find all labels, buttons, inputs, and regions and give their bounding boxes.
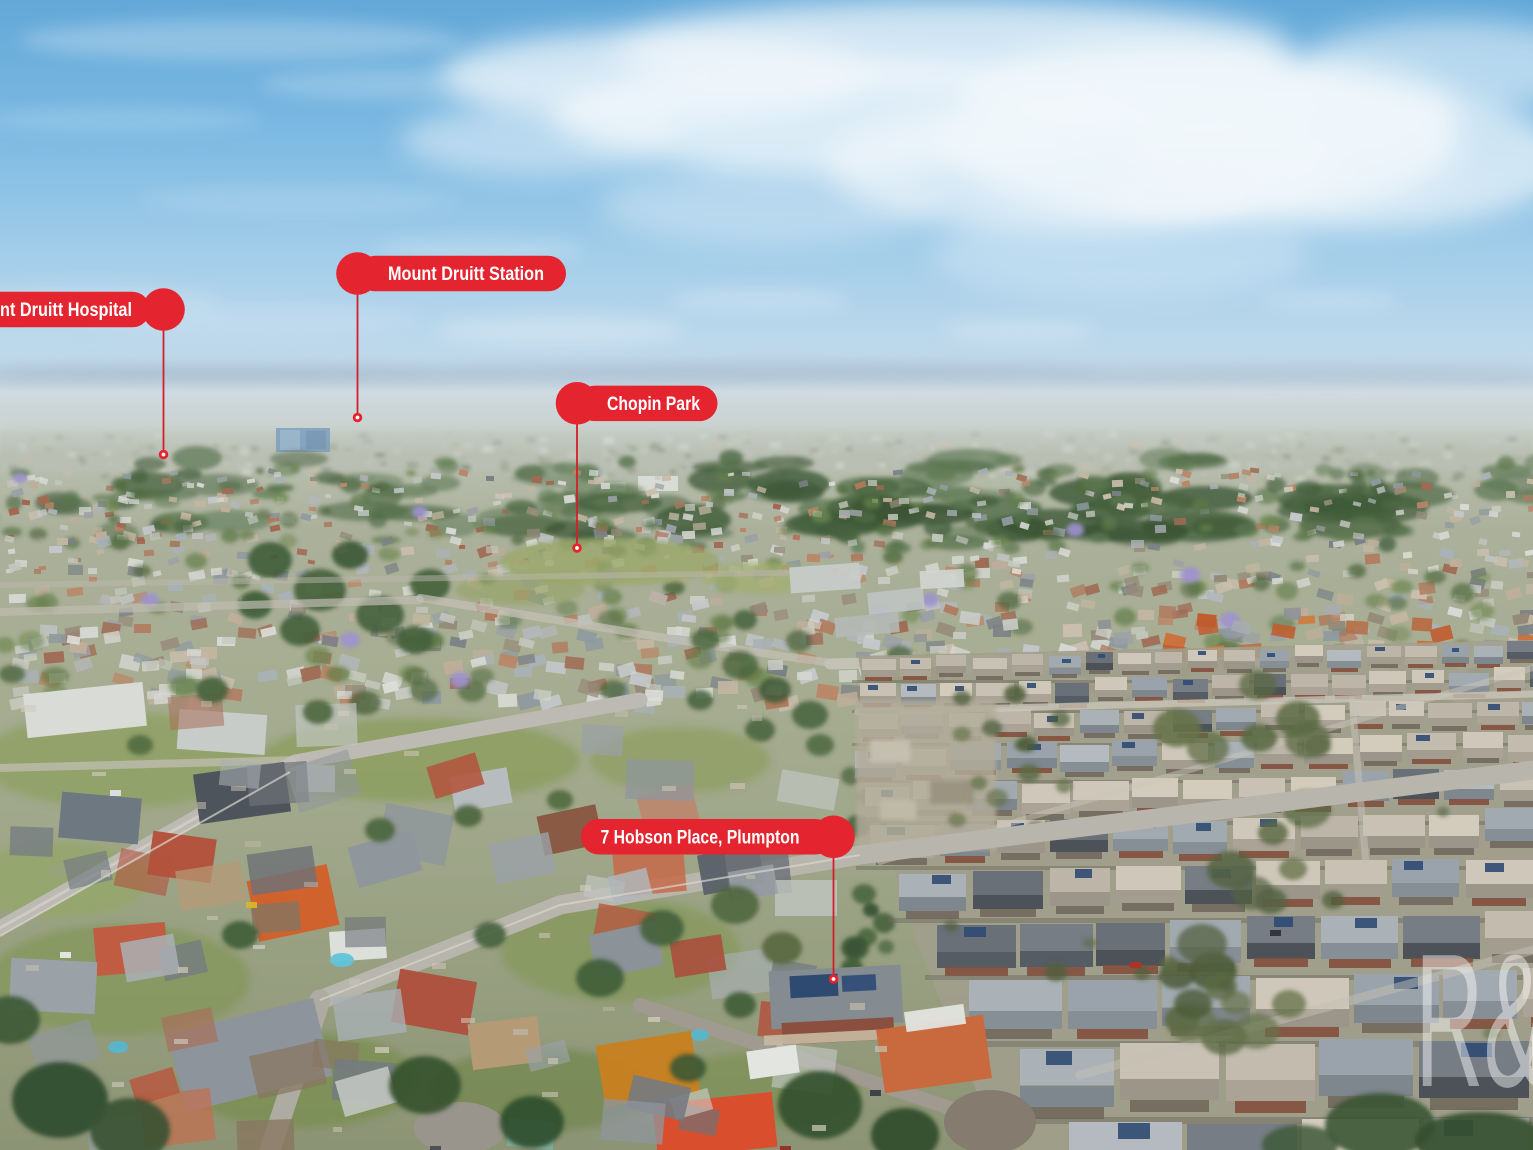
svg-text:R&: R&	[1415, 914, 1533, 1127]
svg-text:nt Druitt Hospital: nt Druitt Hospital	[0, 300, 132, 321]
svg-text:Chopin Park: Chopin Park	[607, 394, 700, 415]
svg-text:Mount Druitt Station: Mount Druitt Station	[388, 264, 544, 285]
svg-text:7 Hobson Place, Plumpton: 7 Hobson Place, Plumpton	[601, 827, 800, 848]
